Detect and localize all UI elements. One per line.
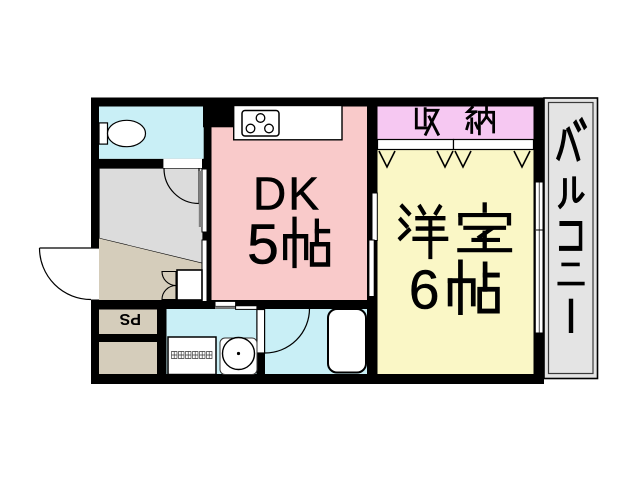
svg-text:6: 6 <box>409 258 440 320</box>
svg-text:5: 5 <box>247 213 279 277</box>
svg-text:PS: PS <box>119 310 141 327</box>
